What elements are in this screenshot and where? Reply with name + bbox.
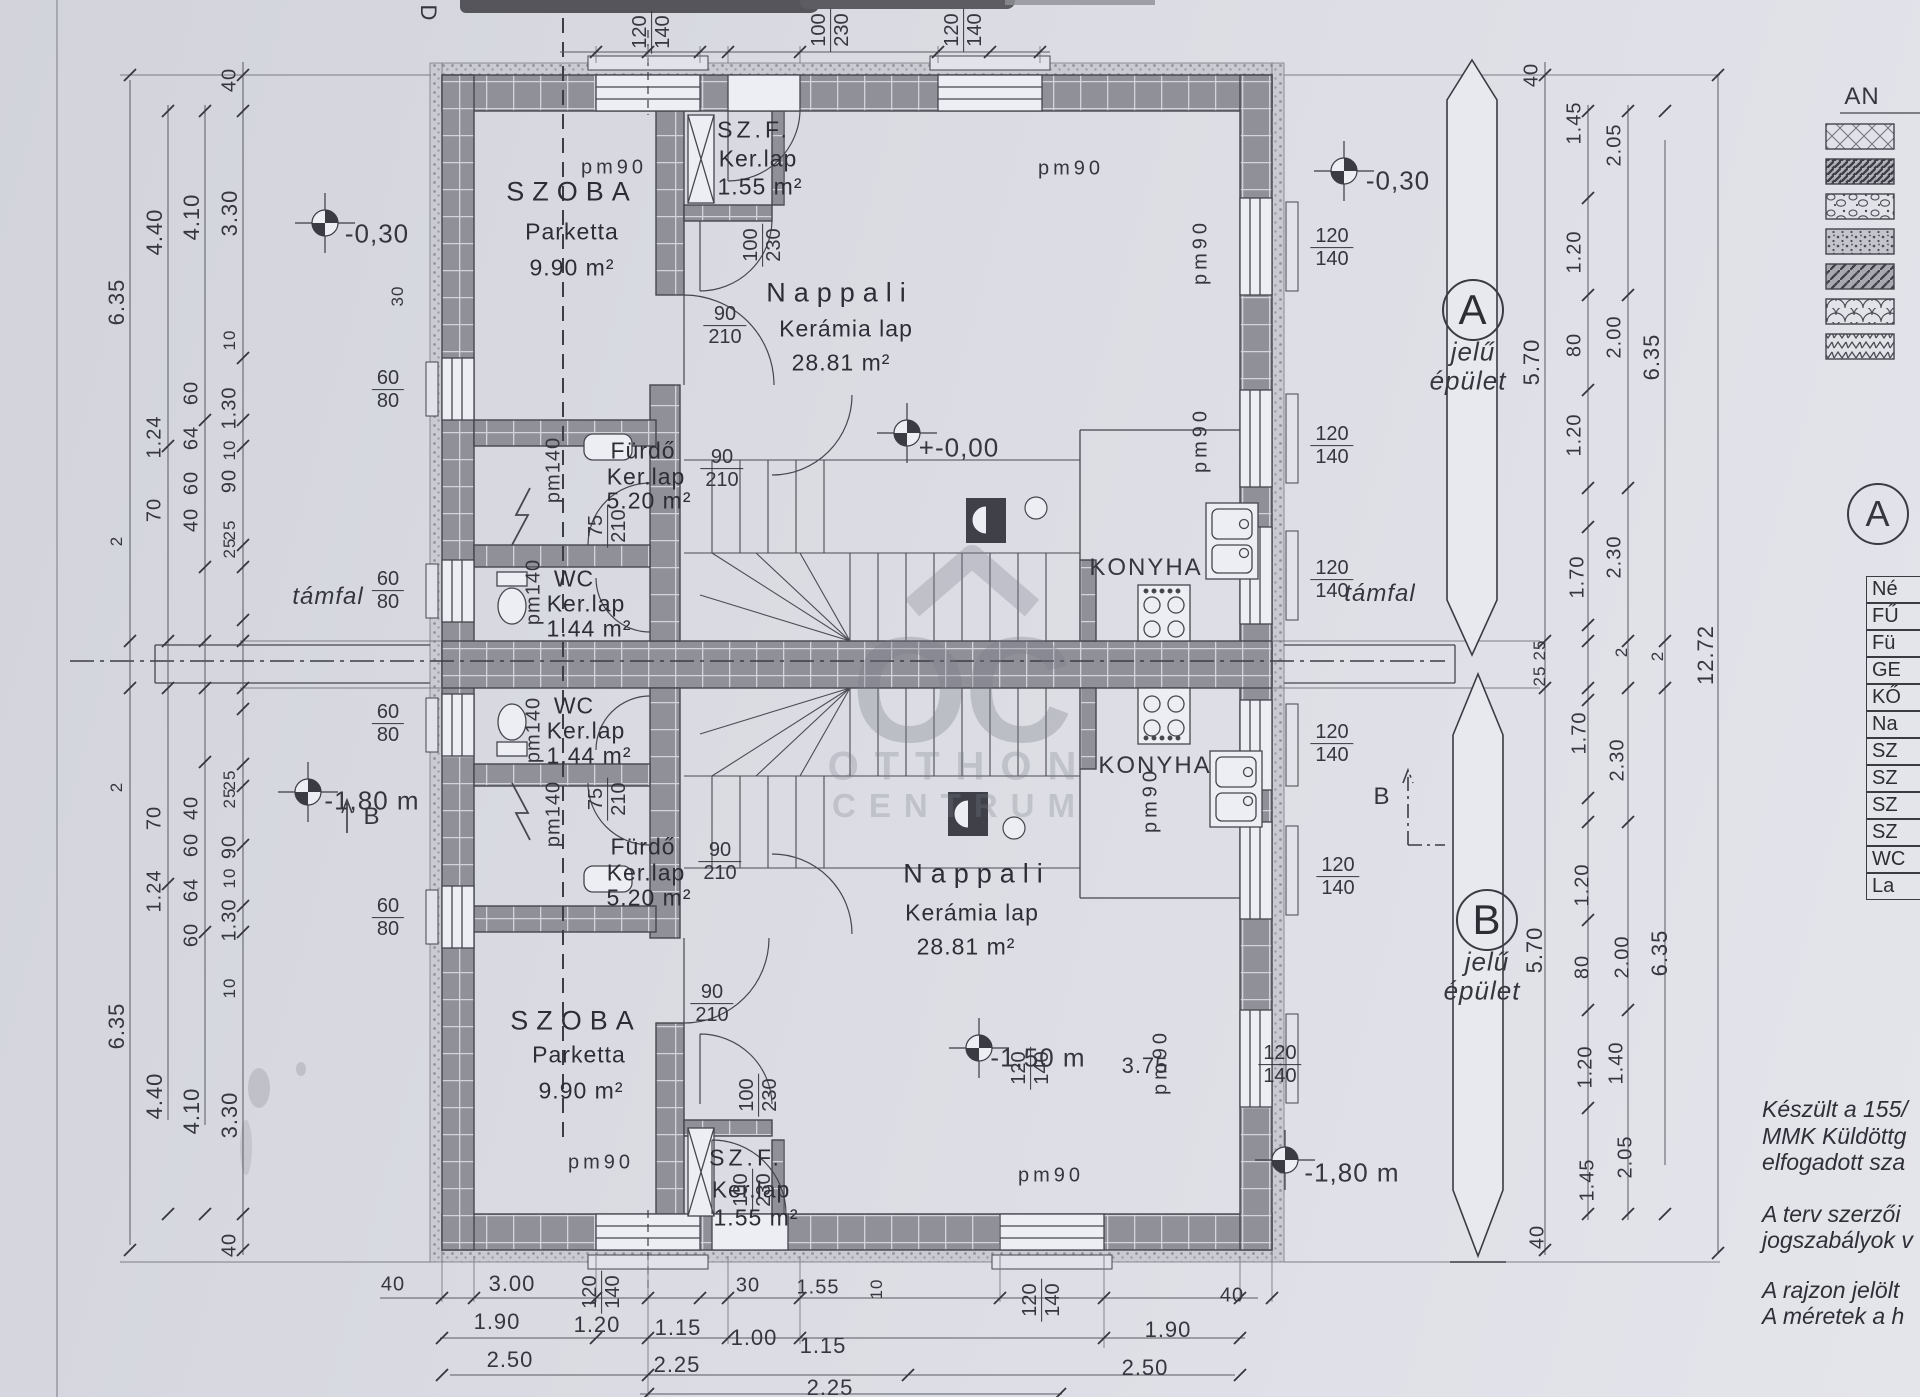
material-table-row: SZ	[1866, 765, 1920, 792]
dim-label: 3.75	[1122, 1053, 1169, 1079]
room-nappali-b-floor: Kerámia lap	[905, 900, 1039, 927]
dim-label: 60	[181, 923, 204, 947]
dim-label: 1.70	[1567, 556, 1590, 599]
dim-label: 2.50	[1122, 1355, 1169, 1381]
window-size-label: 120140	[579, 1270, 625, 1313]
dim-label: 6.35	[1647, 930, 1673, 977]
dim-label: 80	[1572, 955, 1595, 979]
dim-label: 10	[220, 330, 240, 351]
pm90-label: pm90	[1018, 1165, 1084, 1188]
building-b-sub2: épület	[1444, 976, 1521, 1007]
detail-circle-letter: A	[1865, 493, 1890, 535]
room-szoba-a-name: SZOBA	[506, 177, 638, 208]
room-wc-b-floor: Ker.lap	[547, 718, 626, 745]
door-size-label: 90210	[698, 839, 741, 885]
dim-label: 1.30	[219, 387, 242, 430]
dim-label: 1.30	[219, 899, 242, 942]
room-szoba-b-name: SZOBA	[510, 1006, 642, 1037]
door-size-label: 90210	[703, 303, 746, 349]
note-line: A terv szerzői	[1762, 1201, 1900, 1228]
dim-label: 10	[867, 1279, 887, 1300]
room-wc-a-area: 1.44 m²	[547, 616, 632, 643]
room-nappali-a-name: Nappali	[766, 278, 914, 309]
dim-label: 40	[181, 796, 204, 820]
building-a-sub1: jelű	[1451, 337, 1495, 368]
material-table-row: Fü	[1866, 630, 1920, 657]
dim-label: 1.20	[1572, 864, 1595, 907]
room-szoba-a-area: 9.90 m²	[530, 255, 615, 282]
window-size-label: 120140	[1310, 721, 1353, 767]
material-table-row: KŐ	[1866, 684, 1920, 711]
building-b-circle-letter: B	[1472, 896, 1501, 944]
window-size-label: 120140	[1310, 225, 1353, 271]
room-furdo-a-floor: Ker.lap	[607, 464, 686, 491]
dim-label: 1.45	[1564, 102, 1587, 145]
dim-label: 1.15	[800, 1333, 847, 1359]
room-szf-a-floor: Ker.lap	[719, 146, 798, 173]
note-line: A méretek a h	[1762, 1303, 1904, 1330]
room-furdo-b-floor: Ker.lap	[607, 860, 686, 887]
dim-label: 1.24	[144, 870, 167, 913]
note-line: Készült a 155/	[1762, 1096, 1908, 1123]
pm90-label: pm90	[581, 157, 647, 180]
dim-label: 1.55	[797, 1277, 840, 1300]
dim-label: 40	[1220, 1285, 1244, 1308]
dim-label: 40	[219, 68, 242, 92]
elevation-value: -1,80 m	[1304, 1158, 1399, 1189]
retaining-wall-label: támfal	[1344, 580, 1415, 608]
dim-label: 5.70	[1522, 927, 1548, 974]
dim-label: 4.10	[179, 1088, 205, 1135]
elevation-value: -1,50 m	[990, 1043, 1085, 1074]
dim-label: 2	[107, 536, 127, 546]
legend-title: AN	[1844, 83, 1879, 111]
note-line: jogszabályok v	[1762, 1227, 1913, 1254]
dim-label: 40	[219, 1233, 242, 1257]
dim-label: 2	[1612, 647, 1632, 657]
dim-label: 40	[1527, 1225, 1550, 1249]
dim-label: 60	[181, 471, 204, 495]
watermark-line2: CENTRUM	[832, 787, 1088, 825]
note-line: A rajzon jelölt	[1762, 1277, 1899, 1304]
pm90-label: pm90	[1190, 219, 1213, 285]
elevation-value: +-0,00	[919, 433, 999, 464]
pm90-label: pm90	[568, 1152, 634, 1175]
room-furdo-b-name: Fürdő	[610, 834, 675, 861]
pm140-label: pm140	[543, 437, 566, 503]
room-wc-a-floor: Ker.lap	[547, 591, 626, 618]
material-table-row: Na	[1866, 711, 1920, 738]
corner-letter-d: D	[415, 5, 441, 22]
window-size-label: 6080	[372, 367, 404, 413]
window-size-label: 120140	[629, 10, 675, 53]
dim-label: 6.35	[1639, 334, 1665, 381]
window-size-label: 120140	[1019, 1278, 1065, 1321]
building-a-circle-letter: A	[1458, 286, 1487, 334]
dim-label: 25	[220, 538, 240, 559]
pm90-label: pm90	[1038, 158, 1104, 181]
room-wc-a-name: WC	[554, 566, 594, 593]
dim-label: 30	[388, 286, 408, 307]
pm90-label: pm90	[1190, 407, 1213, 473]
dim-label: 25	[1530, 666, 1550, 687]
dim-label: 60	[181, 833, 204, 857]
dim-label: 4.40	[142, 1073, 168, 1120]
pm140-label: pm140	[543, 781, 566, 847]
dim-label: 1.20	[574, 1312, 621, 1338]
dim-label: 2.05	[1604, 124, 1627, 167]
retaining-wall-label: támfal	[292, 583, 363, 611]
pm140-label: pm140	[523, 559, 546, 625]
dim-label: 3.30	[217, 1092, 243, 1139]
pm140-label: pm140	[523, 697, 546, 763]
room-furdo-a-name: Fürdő	[610, 438, 675, 465]
room-wc-b-name: WC	[554, 693, 594, 720]
dim-label: 3.00	[489, 1271, 536, 1297]
material-table-row: FŰ	[1866, 603, 1920, 630]
room-konyha-a-name: KONYHA	[1089, 554, 1202, 582]
dim-label: 70	[144, 806, 167, 830]
room-szf-a-area: 1.55 m²	[718, 174, 803, 201]
window-size-label: 6080	[372, 701, 404, 747]
material-table-row: Né	[1866, 576, 1920, 603]
watermark-line1: OTTHON	[828, 745, 1093, 790]
dim-label: 2.00	[1612, 936, 1635, 979]
material-table-row: SZ	[1866, 738, 1920, 765]
door-size-label: 100230	[740, 223, 786, 266]
dim-label: 64	[181, 426, 204, 450]
dim-label: 30	[736, 1275, 760, 1298]
window-size-label: 120140	[941, 8, 987, 51]
room-szoba-b-floor: Parketta	[532, 1042, 626, 1069]
door-size-label: 100230	[730, 1168, 776, 1211]
dim-label: 1.20	[1575, 1046, 1598, 1089]
dim-label: 6.35	[104, 1003, 130, 1050]
room-nappali-a-floor: Kerámia lap	[779, 316, 913, 343]
door-size-label: 100230	[808, 8, 854, 51]
elevation-value: -0,30	[345, 219, 409, 250]
dim-label: 25	[220, 788, 240, 809]
dim-label: 5.70	[1519, 339, 1545, 386]
note-line: elfogadott sza	[1762, 1149, 1905, 1176]
dim-label: 10	[220, 868, 240, 889]
material-table-row: WC	[1866, 846, 1920, 873]
dim-label: 2.50	[487, 1347, 534, 1373]
material-table-row: GE	[1866, 657, 1920, 684]
dim-label: 6.35	[104, 279, 130, 326]
dim-label: 80	[1564, 333, 1587, 357]
dim-label: 1.90	[474, 1309, 521, 1335]
dim-label: 2.05	[1615, 1136, 1638, 1179]
door-size-label: 75210	[585, 504, 631, 547]
dim-label: 2.30	[1604, 536, 1627, 579]
dim-label: 1.24	[144, 416, 167, 459]
dim-label: 1.20	[1564, 231, 1587, 274]
material-table-row: La	[1866, 873, 1920, 900]
dim-label: 70	[144, 498, 167, 522]
window-size-label: 120140	[1258, 1042, 1301, 1088]
dim-label: 1.90	[1145, 1317, 1192, 1343]
elevation-value: -0,30	[1366, 166, 1430, 197]
building-b-sub1: jelű	[1465, 947, 1509, 978]
dim-label: 10	[220, 978, 240, 999]
door-size-label: 75210	[585, 777, 631, 820]
window-size-label: 120140	[1316, 854, 1359, 900]
window-size-label: 6080	[372, 568, 404, 614]
dim-label: 1.15	[655, 1315, 702, 1341]
section-marker-b: B	[1373, 783, 1390, 811]
room-szf-a-name: SZ.F.	[717, 117, 791, 144]
dim-label: 10	[220, 440, 240, 461]
dim-label: 1.20	[1564, 414, 1587, 457]
dim-label: 4.40	[142, 209, 168, 256]
room-nappali-b-name: Nappali	[903, 859, 1051, 890]
room-nappali-b-area: 28.81 m²	[917, 934, 1016, 961]
door-size-label: 100230	[736, 1073, 782, 1116]
dim-label: 2.25	[654, 1352, 701, 1378]
dim-label: 40	[1521, 63, 1544, 87]
room-nappali-a-area: 28.81 m²	[792, 350, 891, 377]
dim-label: 90	[219, 835, 242, 859]
dim-label: 2	[107, 782, 127, 792]
dim-label: 2.25	[807, 1375, 854, 1397]
dim-label: 64	[181, 878, 204, 902]
dim-label: 40	[181, 508, 204, 532]
room-szoba-a-floor: Parketta	[525, 219, 619, 246]
legend-swatches	[1826, 113, 1920, 359]
dim-label: 1.00	[731, 1325, 778, 1351]
dim-label: 90	[219, 469, 242, 493]
door-size-label: 90210	[700, 446, 743, 492]
material-table-row: SZ	[1866, 792, 1920, 819]
note-line: MMK Küldöttg	[1762, 1123, 1906, 1150]
dim-label: 2.00	[1604, 316, 1627, 359]
dim-label: 3.30	[217, 190, 243, 237]
dim-label: 25	[1530, 640, 1550, 661]
floorplan-scan: OC OTTHON CENTRUM SZOBA Parketta 9.90 m²…	[0, 0, 1920, 1397]
window-size-label: 6080	[372, 895, 404, 941]
door-size-label: 90210	[690, 981, 733, 1027]
dim-label: 1.70	[1569, 712, 1592, 755]
material-table-row: SZ	[1866, 819, 1920, 846]
dim-label: 1.45	[1577, 1159, 1600, 1202]
pm90-label: pm90	[1140, 767, 1163, 833]
room-wc-b-area: 1.44 m²	[547, 743, 632, 770]
building-a-sub2: épület	[1430, 366, 1507, 397]
section-marker-b: B	[363, 803, 380, 831]
dim-label: 2	[1648, 651, 1668, 661]
dim-label: 60	[181, 381, 204, 405]
dim-label: 40	[381, 1274, 405, 1297]
room-furdo-b-area: 5.20 m²	[607, 885, 692, 912]
dim-label: 1.40	[1606, 1042, 1629, 1085]
dim-label: 4.10	[179, 194, 205, 241]
dim-label: 12.72	[1693, 625, 1719, 685]
window-size-label: 120140	[1310, 423, 1353, 469]
room-szoba-b-area: 9.90 m²	[539, 1078, 624, 1105]
dim-label: 2.30	[1607, 739, 1630, 782]
